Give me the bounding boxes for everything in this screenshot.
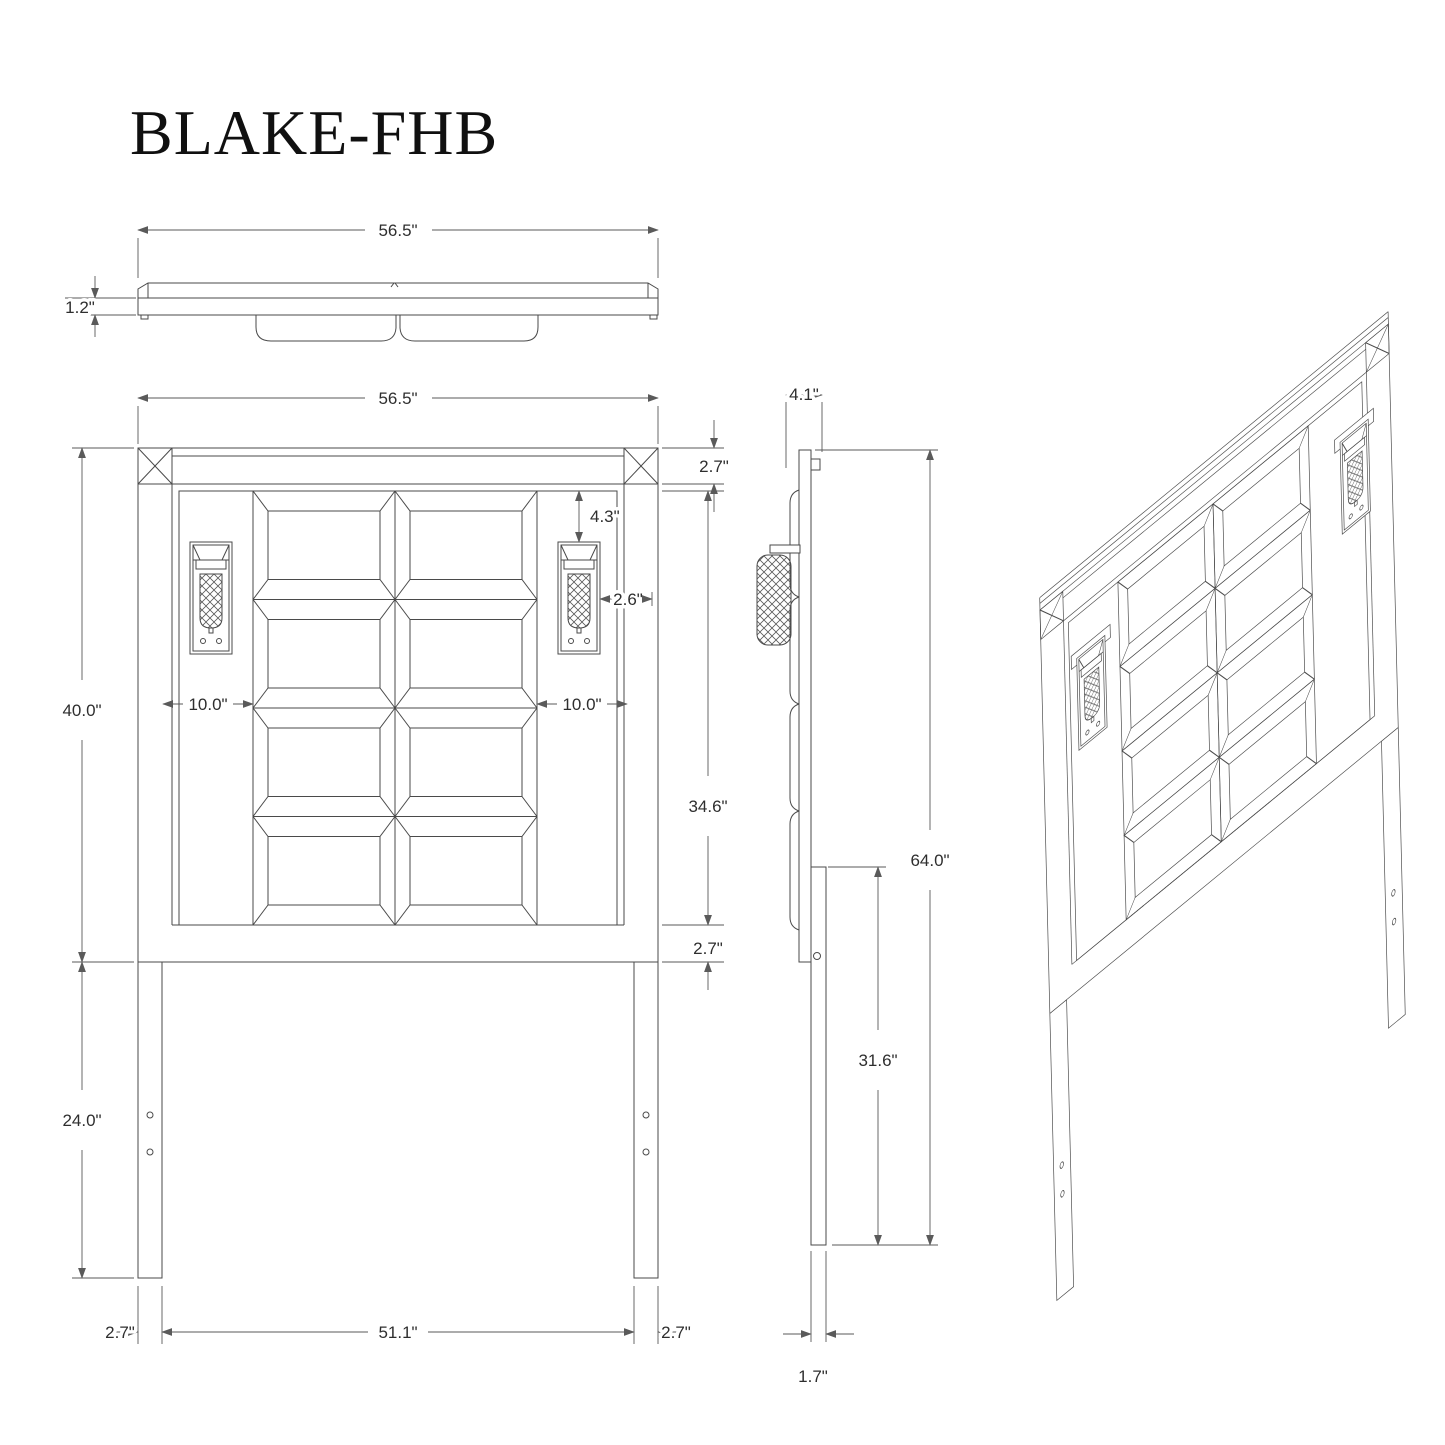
dim-front-right-leg-width: 2.7" — [661, 1323, 691, 1342]
front-view-geometry — [138, 448, 658, 1278]
bolt-hole — [643, 1112, 649, 1118]
dim-front-field-height: 34.6" — [688, 797, 727, 816]
perspective-view — [1040, 312, 1406, 1301]
dim-front-leg-length: 24.0" — [62, 1111, 101, 1130]
dim-front-inset-left: 10.0" — [188, 695, 227, 714]
dim-front-left-leg-width: 2.7" — [105, 1323, 135, 1342]
bolt-hole — [643, 1149, 649, 1155]
front-left-leg — [138, 962, 162, 1278]
bolt-hole — [147, 1149, 153, 1155]
drawing-canvas: 56.5" 1.2" — [0, 0, 1445, 1445]
side-panel-board — [799, 450, 811, 962]
side-sconce-canopy — [770, 545, 800, 553]
dim-top-width: 56.5" — [378, 221, 417, 240]
dim-side-depth: 4.1" — [789, 385, 819, 404]
dim-front-inner-span: 51.1" — [378, 1323, 417, 1342]
dim-side-overall-height: 64.0" — [910, 851, 949, 870]
front-left-sconce — [190, 542, 232, 654]
dim-front-inset-right: 10.0" — [562, 695, 601, 714]
dim-front-width: 56.5" — [378, 389, 417, 408]
dim-front-sconce-offset: 4.3" — [590, 507, 620, 526]
persp-right-leg — [1381, 727, 1405, 1028]
front-right-sconce — [558, 542, 600, 654]
dim-front-top-rail: 2.7" — [699, 457, 729, 476]
top-view-dimensions: 56.5" 1.2" — [65, 221, 658, 337]
side-leg — [811, 867, 826, 1245]
side-view-geometry — [757, 450, 826, 1245]
dim-front-sconce-width: 2.6" — [613, 590, 643, 609]
front-right-leg — [634, 962, 658, 1278]
side-bolt — [814, 953, 821, 960]
dim-side-leg-length: 31.6" — [858, 1051, 897, 1070]
top-view-right-panel-bump — [400, 315, 538, 341]
top-view: 56.5" 1.2" — [65, 221, 658, 341]
top-view-left-panel-bump — [256, 315, 396, 341]
side-sconce-shade — [757, 555, 791, 645]
top-view-geometry — [138, 283, 658, 341]
top-view-left-nub — [141, 315, 148, 319]
dim-front-headboard-height: 40.0" — [62, 701, 101, 720]
top-view-right-nub — [650, 315, 657, 319]
bolt-hole — [147, 1112, 153, 1118]
persp-left-leg — [1050, 1000, 1074, 1301]
side-view: 4.1" 64.0" 31.6" 1.7" — [757, 385, 950, 1386]
technical-drawing-sheet: BLAKE-FHB — [0, 0, 1445, 1445]
dim-front-bottom-rail: 2.7" — [693, 939, 723, 958]
dim-top-thickness: 1.2" — [65, 298, 95, 317]
front-view: 56.5" 2.7" 4.3" 2.6" 10.0" — [62, 389, 728, 1344]
side-top-bracket — [811, 459, 820, 470]
dim-side-leg-depth: 1.7" — [798, 1367, 828, 1386]
